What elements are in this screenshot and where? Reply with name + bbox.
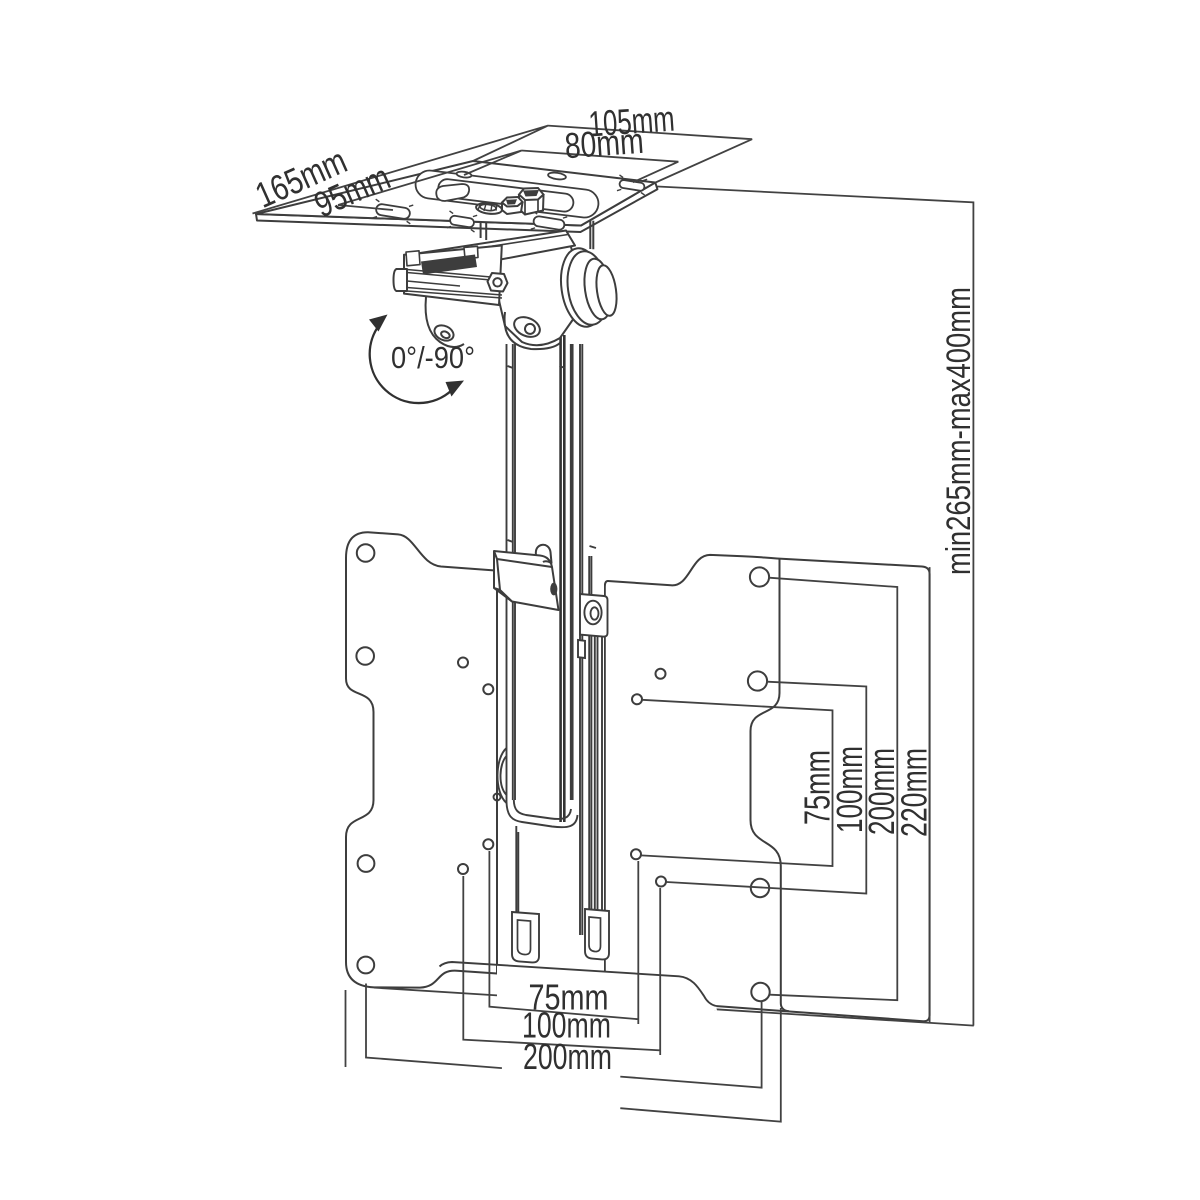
svg-text:200mm: 200mm [523, 1036, 612, 1077]
svg-text:min265mm-max400mm: min265mm-max400mm [940, 287, 978, 575]
svg-text:220mm: 220mm [894, 748, 935, 837]
svg-text:80mm: 80mm [563, 120, 645, 166]
svg-text:0°/-90°: 0°/-90° [391, 340, 475, 375]
